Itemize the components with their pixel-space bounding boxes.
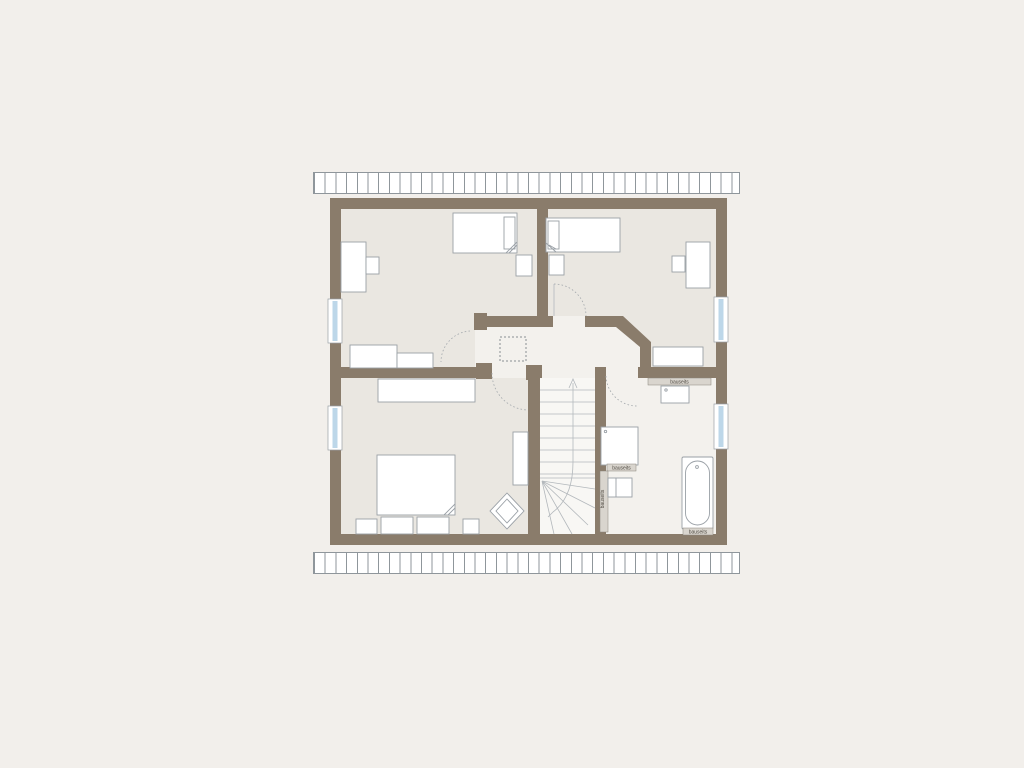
double-bed	[377, 455, 455, 515]
wall-cap-hall	[474, 313, 487, 330]
floor-plan: bauseits bauseits bauseits bauseits	[0, 0, 1024, 768]
window-right-lower	[714, 404, 728, 449]
bench-cushion	[356, 519, 377, 534]
stairwell-floor	[540, 378, 595, 534]
bathtub-label: bauseits	[689, 530, 708, 536]
chimney	[500, 337, 526, 361]
window-left-upper	[328, 299, 342, 343]
nightstand	[516, 255, 532, 276]
bed-pillow	[504, 217, 515, 249]
bench-cushion	[381, 517, 413, 534]
sideboard	[653, 347, 703, 366]
desk-chair	[366, 257, 379, 274]
wall-stair-left	[528, 367, 540, 534]
desk-chair	[672, 256, 685, 272]
bench-cushion	[463, 519, 479, 534]
wall-bath-top	[638, 367, 716, 378]
tall-cabinet	[513, 432, 528, 485]
bed-pillow	[548, 221, 559, 249]
column-label: bauseits	[600, 489, 606, 508]
desk	[686, 242, 710, 288]
bench-cushion	[417, 517, 449, 534]
wardrobe	[378, 379, 475, 402]
vanity-label: bauseits	[670, 380, 689, 386]
nightstand	[549, 255, 564, 275]
window-left-lower	[328, 406, 342, 450]
sofa-side	[397, 353, 433, 368]
desk	[341, 242, 366, 292]
washbasin	[661, 386, 689, 403]
wall-cap-bedroom	[476, 363, 492, 379]
wall-bedroom-top	[341, 367, 477, 378]
sofa	[350, 345, 397, 368]
window-right-upper	[714, 297, 728, 342]
staircase	[540, 378, 595, 534]
shower-label: bauseits	[612, 466, 631, 472]
toilet	[608, 478, 632, 497]
